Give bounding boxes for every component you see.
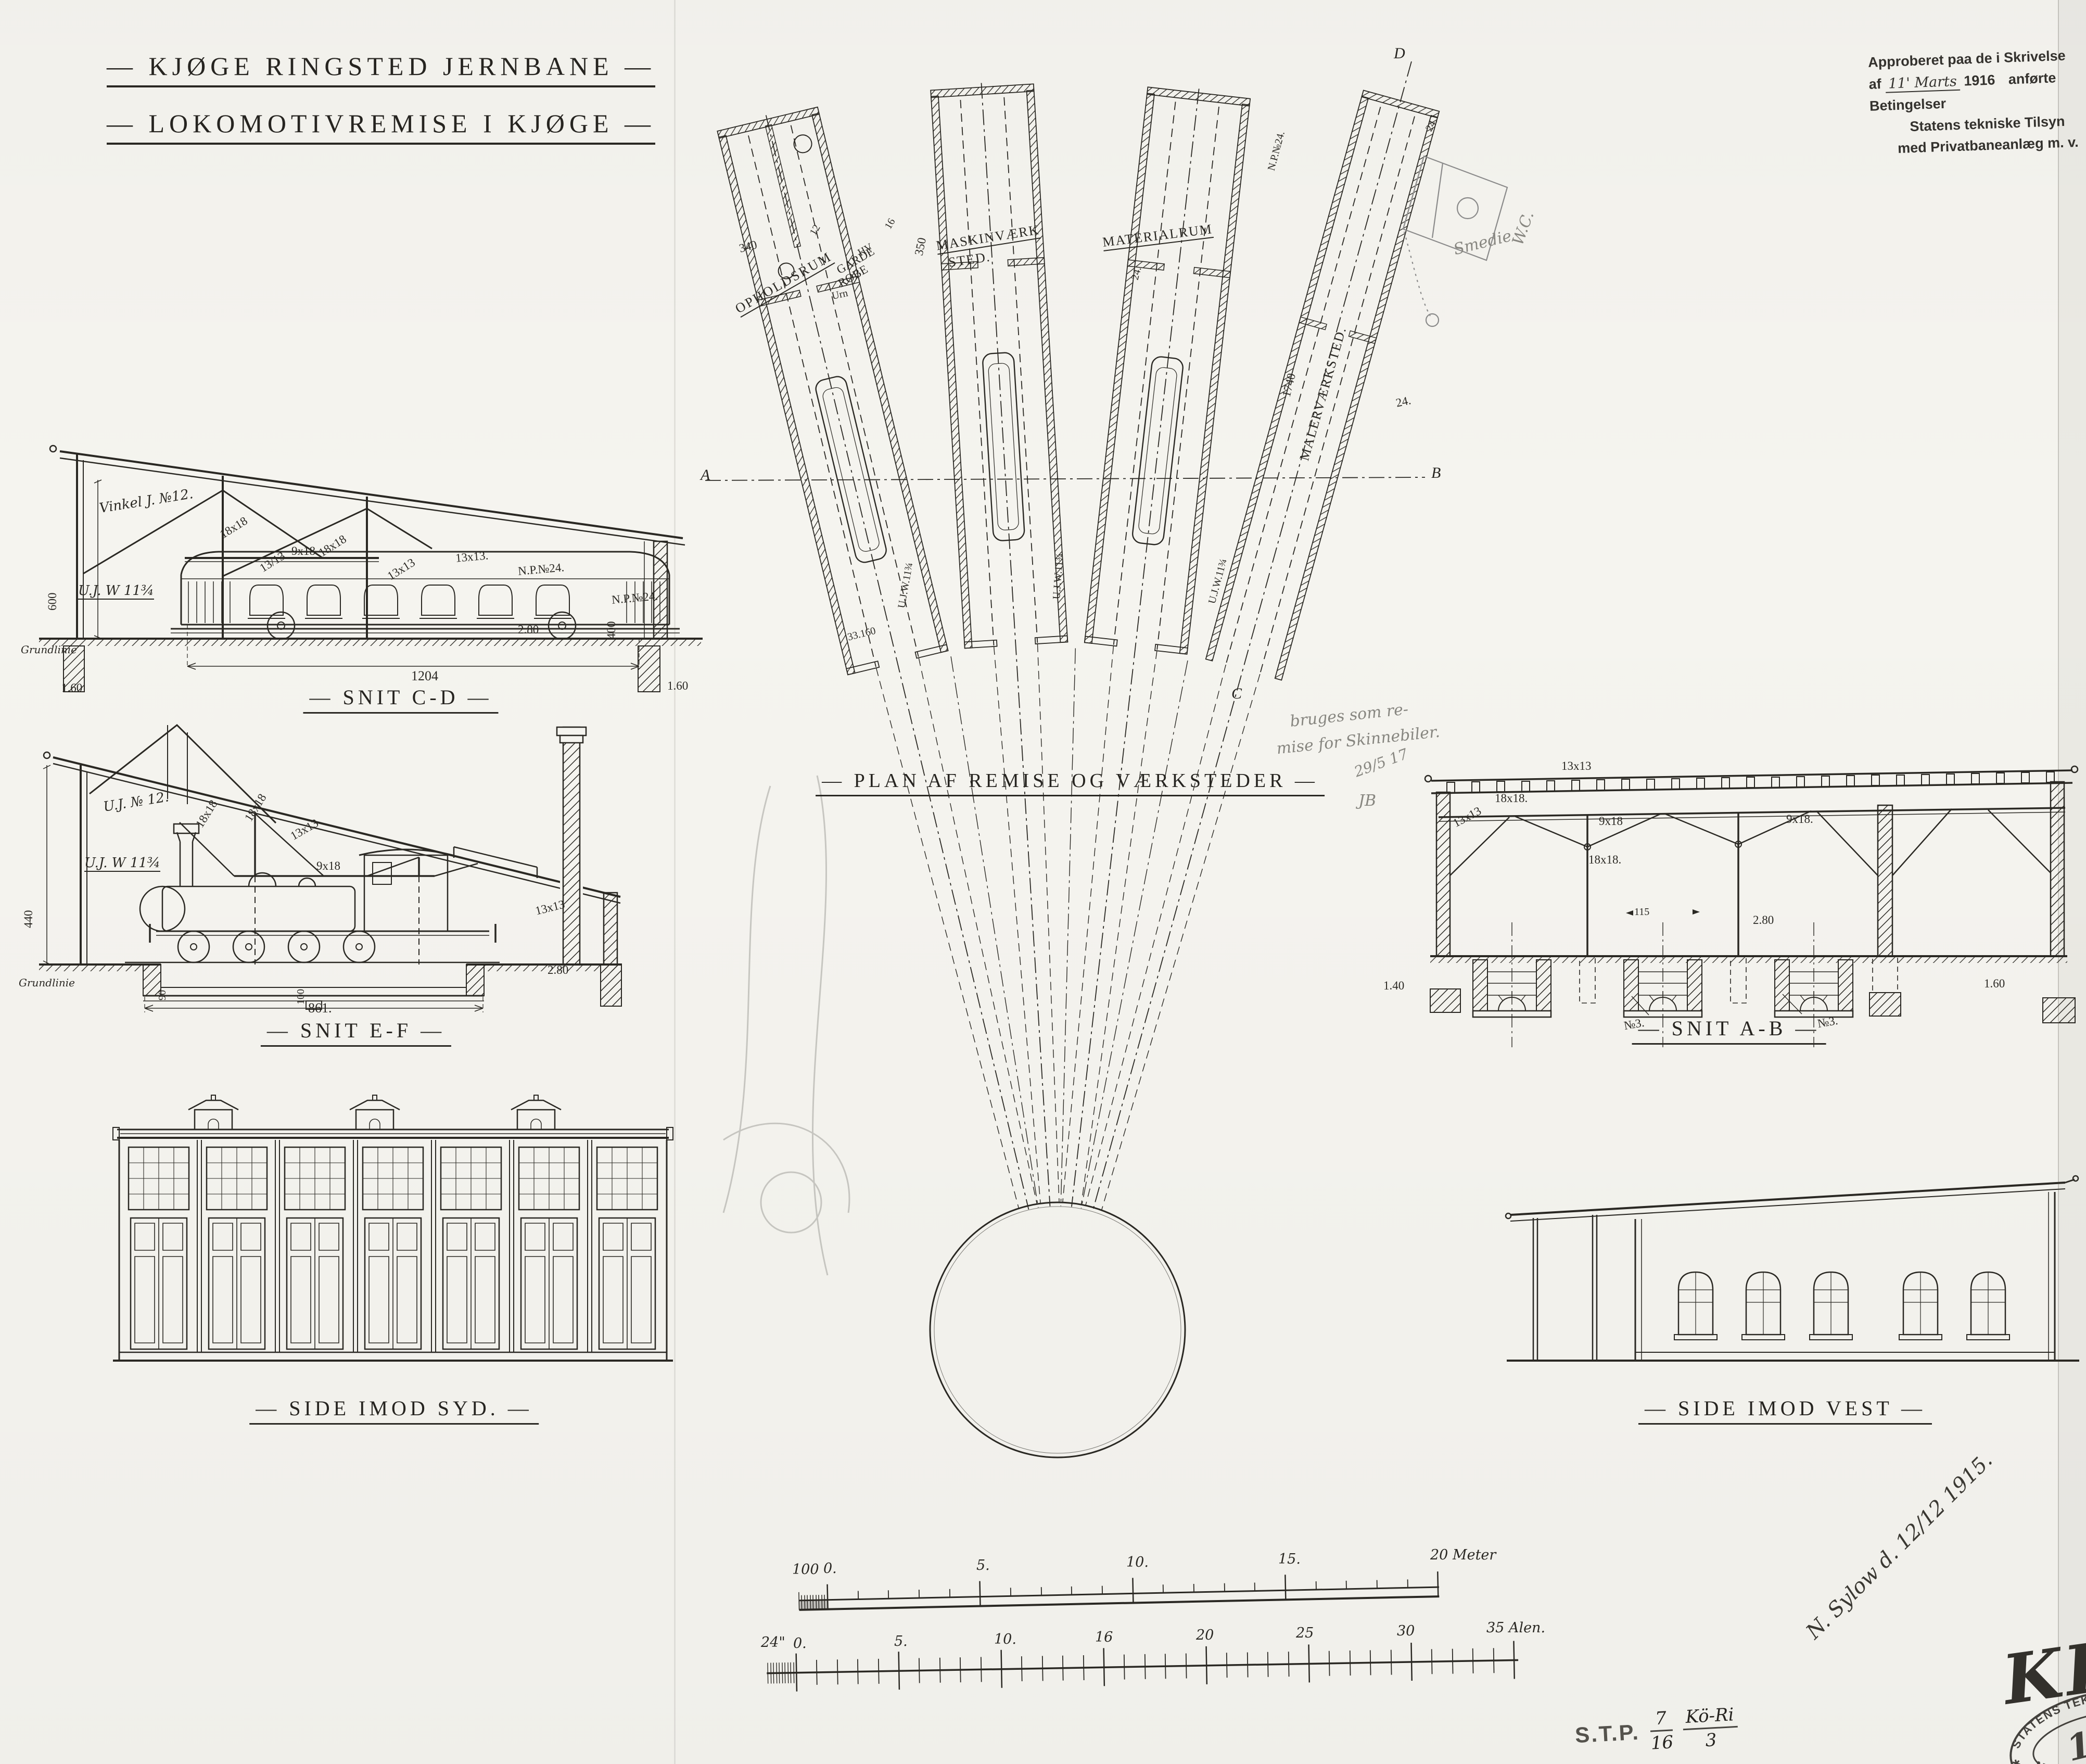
plan-dim-24-b: 24.: [1395, 394, 1412, 409]
meter-scale-5: 5.: [976, 1557, 990, 1573]
snit-ab-caption: — SNIT A-B —: [1632, 1016, 1826, 1045]
section-marker-b: B: [1431, 464, 1441, 482]
ef-dim-100: 100: [296, 989, 306, 1005]
side-syd-caption: — SIDE IMOD SYD. —: [249, 1396, 539, 1425]
alen-scale-0: 0.: [793, 1635, 807, 1652]
ef-dim-90: 90: [157, 990, 168, 1000]
stp-fraction-1: 7 16: [1649, 1707, 1674, 1754]
alen-scale-24: 24": [761, 1634, 785, 1651]
approval-af: af: [1868, 76, 1881, 92]
cd-dim-280: 2.80: [518, 624, 539, 636]
stp-f2-numerator: Kö-Ri: [1682, 1704, 1738, 1730]
cd-dim-400: 400: [605, 621, 617, 640]
stp-fraction-2: Kö-Ri 3: [1682, 1704, 1739, 1752]
fold-crease-left: [674, 0, 676, 1764]
cd-dim-13x13-c: 13x13.: [455, 549, 489, 564]
approval-line2: af 11' Marts 1916 anførte Betingelser: [1868, 66, 2086, 117]
ef-label-ujw: U.J. W 11¾: [84, 856, 160, 872]
alen-scale-25: 25: [1296, 1625, 1314, 1641]
meter-scale-15: 15.: [1278, 1551, 1301, 1567]
cd-label-ujw: U.J. W 11¾: [78, 584, 154, 600]
approval-date: 11' Marts: [1885, 73, 1961, 93]
ab-dim-140: 1.40: [1383, 980, 1404, 992]
cd-ground-label: Grundlinie: [21, 644, 77, 655]
engineer-signature: N. Sylow d. 12/12 1915.: [1803, 1450, 1996, 1643]
snit-cd-caption: — SNIT C-D —: [303, 685, 498, 714]
ab-dim-13x13-top: 13x13: [1561, 760, 1592, 772]
sheet-title-line1: — KJØGE RINGSTED JERNBANE —: [107, 51, 655, 87]
ab-dim-18x18-a: 18x18.: [1495, 792, 1528, 804]
meter-scale-20: 20 Meter: [1430, 1547, 1496, 1563]
ab-dim-280: 2.80: [1753, 914, 1774, 926]
approval-year: 1916: [1964, 72, 1995, 88]
stp-f1-denominator: 16: [1650, 1731, 1674, 1754]
stp-f2-denominator: 3: [1683, 1728, 1739, 1752]
ef-dim-440: 440: [22, 910, 34, 929]
cd-dim-160-left: 1.60: [61, 682, 82, 694]
approval-stamp: Approberet paa de i Skrivelse af 11' Mar…: [1867, 44, 2086, 161]
ab-dim-115: 115: [1634, 907, 1649, 917]
stp-file-note: S.T.P. 7 16 Kö-Ri 3: [1574, 1704, 1739, 1758]
ef-dim-9x18: 9x18: [316, 860, 340, 872]
stamp-star-icon: ✱: [2011, 1757, 2023, 1764]
alen-scale-20: 20: [1196, 1627, 1214, 1643]
side-vest-caption: — SIDE IMOD VEST —: [1638, 1396, 1932, 1425]
side-syd-drawing: [112, 1094, 674, 1378]
snit-cd-drawing: [31, 402, 708, 693]
meter-scale-0: 0.: [823, 1560, 837, 1577]
ef-ground-label: Grundlinie: [19, 978, 75, 988]
ab-dim-18x18-b: 18x18.: [1588, 854, 1621, 866]
ef-dim-861: 861.: [308, 1001, 332, 1015]
cd-dim-600: 600: [46, 593, 58, 611]
section-marker-c: C: [1231, 685, 1242, 703]
scale-bar-meter: [780, 1554, 1458, 1631]
alen-scale-30: 30: [1397, 1623, 1415, 1639]
snit-ef-drawing: [31, 721, 635, 1033]
meter-scale-10: 10.: [1126, 1554, 1149, 1570]
alen-scale-5: 5.: [894, 1633, 908, 1649]
ef-dim-280: 2.80: [548, 964, 568, 976]
alen-scale-35: 35 Alen.: [1486, 1620, 1545, 1636]
sheet-edge-shade: [2059, 0, 2086, 1764]
section-marker-a: A: [701, 466, 710, 484]
pencil-scribbles: [692, 744, 984, 1296]
snit-ef-caption: — SNIT E-F —: [261, 1018, 451, 1047]
stp-prefix: S.T.P.: [1574, 1719, 1640, 1747]
section-marker-d: D: [1394, 45, 1405, 62]
alen-scale-16: 16: [1095, 1629, 1113, 1645]
pencil-note-initials: JB: [1358, 793, 1376, 809]
meter-scale-100: 100: [792, 1562, 819, 1578]
sheet-title-line2: — LOKOMOTIVREMISE I KJØGE —: [107, 108, 655, 145]
cd-dim-1204: 1204: [411, 669, 438, 683]
cd-dim-9x18: 9x18: [291, 545, 315, 557]
stp-f1-numerator: 7: [1649, 1707, 1673, 1732]
ab-dim-160: 1.60: [1984, 978, 2005, 989]
roof-ventilators: [188, 1095, 561, 1130]
drawing-sheet: — KJØGE RINGSTED JERNBANE — — LOKOMOTIVR…: [0, 0, 2086, 1764]
side-vest-drawing: [1504, 1151, 2082, 1391]
alen-scale-10: 10.: [994, 1631, 1016, 1647]
ab-dim-9x18-b: 9x18.: [1786, 813, 1813, 825]
ab-dim-9x18-a: 9x18: [1599, 815, 1623, 827]
plan-caption: — PLAN AF REMISE OG VÆRKSTEDER —: [816, 769, 1325, 796]
